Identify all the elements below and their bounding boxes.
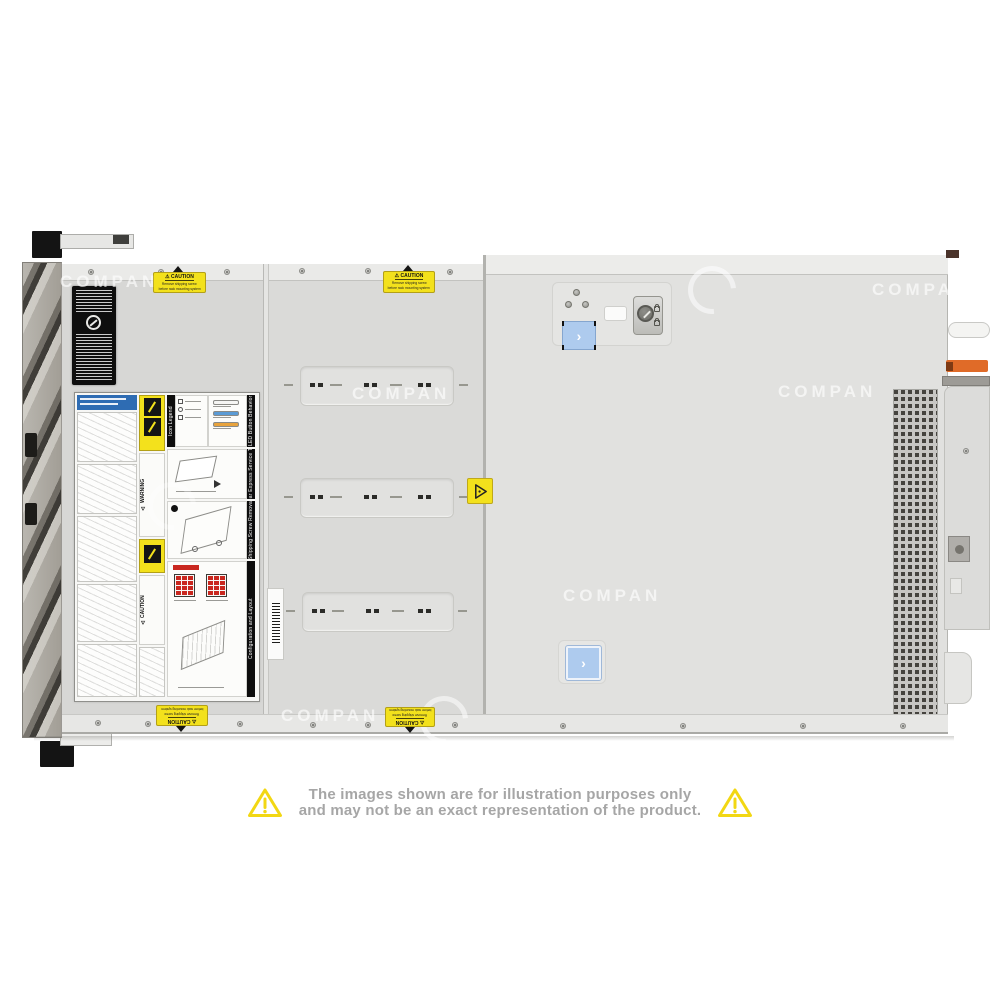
certification-mark-icon xyxy=(86,315,101,330)
seam-warning-sticker xyxy=(467,478,493,504)
watermark-text: COMPAN xyxy=(563,586,661,606)
led-behavior-content xyxy=(208,395,247,447)
instruction-diagram xyxy=(77,464,137,514)
watermark-text: COMPAN xyxy=(281,706,379,726)
screw xyxy=(900,723,906,729)
lock-icon xyxy=(654,306,660,312)
led-white xyxy=(213,400,239,405)
vent-slots xyxy=(366,609,379,613)
barcode-sticker xyxy=(267,588,284,660)
hood-latch-button: › xyxy=(562,321,596,350)
led-blue xyxy=(213,411,239,416)
instruction-diagram xyxy=(77,412,137,462)
vent-slots xyxy=(312,609,325,613)
led-amber xyxy=(213,422,239,427)
screw xyxy=(447,269,453,275)
panel-dash xyxy=(392,610,404,612)
caution-line: Remove shipping screw xyxy=(393,713,428,718)
caution-line: before rack mounting system xyxy=(158,286,200,291)
warning-triangle-icon xyxy=(717,786,753,819)
tip-hazard-icon xyxy=(144,545,161,563)
warning-pictogram-strip xyxy=(139,539,165,573)
pinch-hazard-icon xyxy=(144,398,161,416)
vent-slots xyxy=(310,495,323,499)
service-label-section-title: Icon Legend xyxy=(167,395,175,447)
panel-dash xyxy=(332,610,344,612)
rear-tab xyxy=(946,250,959,258)
service-label-section-title: Shipping Screw Removal xyxy=(247,501,255,559)
disclaimer: The images shown are for illustration pu… xyxy=(0,786,1000,819)
sticker-pointer xyxy=(405,727,415,733)
screw xyxy=(365,268,371,274)
regulatory-label-text-lines xyxy=(76,290,112,312)
caution-line: before rack mounting system xyxy=(388,285,430,290)
chevron-right-icon: › xyxy=(581,656,586,670)
watermark-text: COMPAN xyxy=(778,382,876,402)
icon-legend-content xyxy=(175,395,208,447)
rear-tab-small xyxy=(950,578,962,594)
service-label-section-title: Configuration and Layout xyxy=(247,561,255,697)
sticker-pointer xyxy=(176,726,186,732)
sticker-pointer xyxy=(173,266,183,272)
caution-text-strip: ⚠ CAUTION xyxy=(139,575,165,645)
vent-slots xyxy=(418,609,431,613)
caution-title: ⚠ CAUTION xyxy=(165,274,194,281)
rear-bracket xyxy=(948,536,970,562)
front-latch-dark xyxy=(25,503,37,525)
slide-tab xyxy=(604,306,627,321)
screw xyxy=(95,720,101,726)
rear-handle-pill xyxy=(948,322,990,338)
vent-slots xyxy=(418,495,431,499)
instruction-diagram xyxy=(77,644,137,697)
screw xyxy=(963,448,969,454)
service-label-blue-header xyxy=(77,395,137,410)
rivet xyxy=(573,289,580,296)
chevron-right-icon: › xyxy=(577,329,582,343)
service-label-section-title: LED Button Behavior xyxy=(247,395,255,447)
disclaimer-line2: and may not be an exact representation o… xyxy=(299,803,702,819)
panel-dash xyxy=(458,610,467,612)
caution-title: ⚠ CAUTION xyxy=(396,718,425,725)
warning-pictogram-strip xyxy=(139,395,165,451)
drive-bay-grid xyxy=(174,574,195,597)
disclaimer-line1: The images shown are for illustration pu… xyxy=(299,787,702,803)
screw xyxy=(800,723,806,729)
warning-triangle-icon xyxy=(247,786,283,819)
caution-title: ⚠ CAUTION xyxy=(140,576,146,644)
watermark-text: COMPAN xyxy=(872,280,970,300)
panel-dash xyxy=(286,610,295,612)
regulatory-label-text-lines xyxy=(76,334,112,380)
instruction-diagram xyxy=(77,584,137,642)
caution-sticker: ⚠ CAUTION Remove shipping screw before r… xyxy=(156,705,208,726)
panel-dash xyxy=(459,384,468,386)
rivet xyxy=(565,301,572,308)
rear-latch-hardware xyxy=(942,376,990,386)
product-photo-canvas: ⚠ WARNING ⚠ CAUTION Icon Legend LED Butt… xyxy=(0,0,1000,1000)
orange-lever-tip xyxy=(946,362,953,371)
screw xyxy=(560,723,566,729)
rivet xyxy=(582,301,589,308)
caution-title: ⚠ CAUTION xyxy=(168,717,197,724)
caution-line: Remove shipping screw xyxy=(165,712,200,717)
vent-slots xyxy=(364,495,377,499)
caution-sticker: ⚠ CAUTION Remove shipping screw before r… xyxy=(385,707,435,727)
instruction-diagram xyxy=(139,647,165,697)
sticker-pointer xyxy=(403,265,413,271)
panel-dash xyxy=(284,496,293,498)
disclaimer-text: The images shown are for illustration pu… xyxy=(299,787,702,818)
screw xyxy=(680,723,686,729)
hood-latch-button: › xyxy=(566,646,601,680)
caution-line: before rack mounting system xyxy=(389,708,431,713)
vent-perforation-grid xyxy=(893,389,938,722)
cover-keylock xyxy=(633,296,663,335)
screw xyxy=(224,269,230,275)
drive-bay-grid xyxy=(206,574,227,597)
warning-title: ⚠ WARNING xyxy=(140,454,146,536)
panel-dash xyxy=(330,496,342,498)
warning-triangle-icon xyxy=(472,483,489,500)
pinch-hazard-icon xyxy=(144,418,161,436)
caution-line: before rack mounting system xyxy=(161,707,203,712)
vent-slots xyxy=(310,383,323,387)
front-bezel-strip xyxy=(22,262,62,738)
unlock-icon xyxy=(654,320,660,326)
service-instruction-label: ⚠ WARNING ⚠ CAUTION Icon Legend LED Butt… xyxy=(74,392,260,702)
caution-title: ⚠ CAUTION xyxy=(395,273,424,280)
caution-sticker: ⚠ CAUTION Remove shipping screw before r… xyxy=(153,272,206,293)
watermark-text: COMPAN xyxy=(60,272,158,292)
caution-sticker: ⚠ CAUTION Remove shipping screw before r… xyxy=(383,271,435,293)
screw xyxy=(145,721,151,727)
configuration-layout-diagram xyxy=(167,561,247,697)
panel-dash xyxy=(330,384,342,386)
regulatory-label xyxy=(72,286,116,385)
instruction-diagram xyxy=(77,516,137,582)
front-latch-dark xyxy=(25,433,37,457)
screw xyxy=(299,268,305,274)
watermark-text: COMPAN xyxy=(352,384,450,404)
rear-protrusion-bottom xyxy=(944,652,972,704)
screw xyxy=(237,721,243,727)
keylock-face xyxy=(637,305,654,322)
panel-dash xyxy=(284,384,293,386)
panel-dash xyxy=(390,496,402,498)
rack-ear-top xyxy=(32,231,62,258)
service-label-section-title: Rear Express Service Tag xyxy=(247,449,255,499)
rail-latch-top xyxy=(113,235,129,244)
chassis-bottom-shadow xyxy=(34,736,954,741)
